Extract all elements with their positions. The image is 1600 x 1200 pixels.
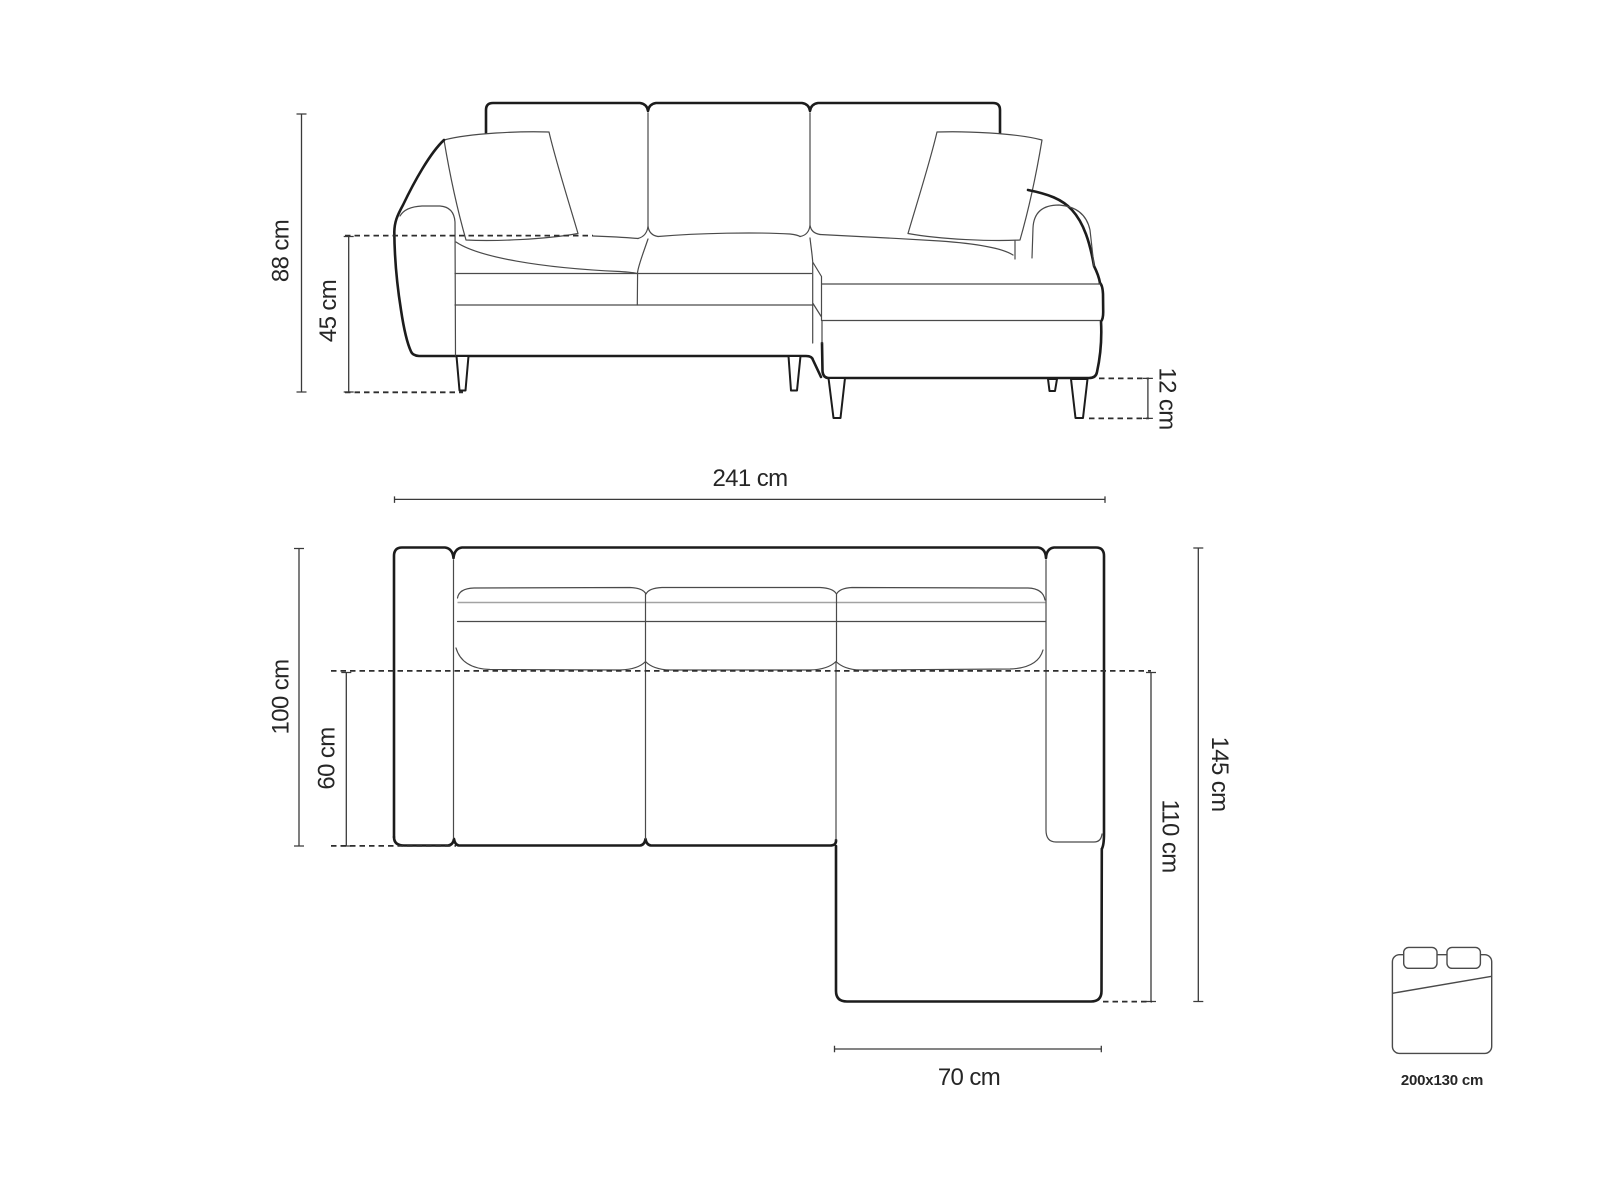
svg-text:145 cm: 145 cm (1206, 736, 1233, 811)
svg-text:110 cm: 110 cm (1157, 799, 1184, 872)
svg-text:45 cm: 45 cm (315, 280, 342, 342)
svg-text:12 cm: 12 cm (1154, 367, 1181, 429)
svg-text:88 cm: 88 cm (268, 220, 295, 282)
svg-text:200x130 cm: 200x130 cm (1401, 1072, 1483, 1089)
svg-text:70 cm: 70 cm (938, 1064, 1000, 1091)
svg-text:241 cm: 241 cm (712, 465, 787, 492)
svg-text:60 cm: 60 cm (314, 727, 341, 789)
svg-text:100 cm: 100 cm (268, 659, 295, 734)
